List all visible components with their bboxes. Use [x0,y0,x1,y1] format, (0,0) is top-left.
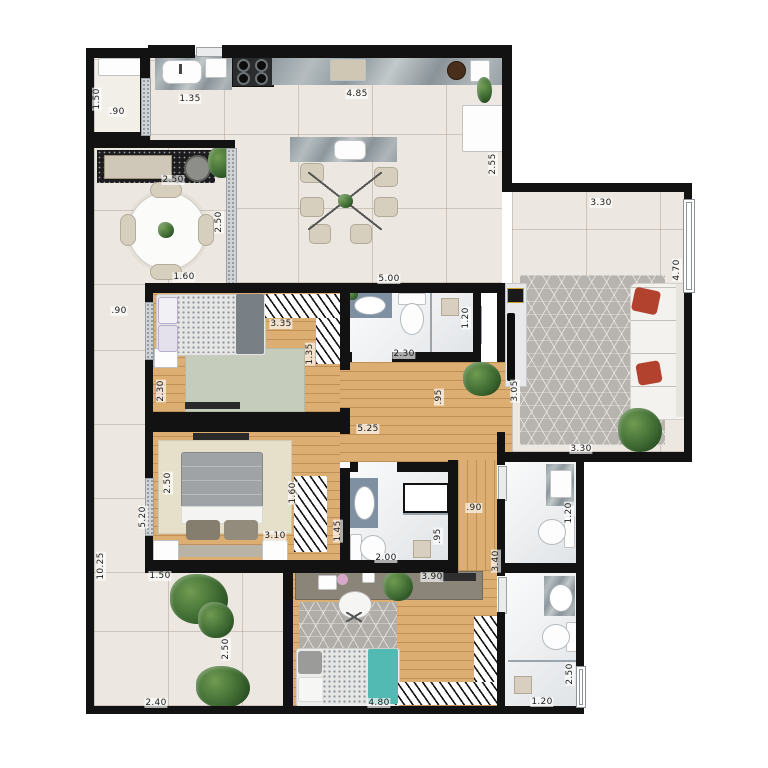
dimension-label: 2.55 [488,152,498,175]
dimension-label: 3.30 [589,198,612,208]
bed1-pillow [158,325,178,352]
dimension-label: 2.50 [161,175,184,185]
wall-bedroom1-top [145,283,505,293]
terrace-chair [198,214,214,246]
fridge [462,105,506,152]
wall-bath3-4-divider [505,563,584,573]
wall-top [222,45,512,58]
floor-plan: .901.501.354.852.552.502.501.60.9010.253… [0,0,768,768]
dimension-label: 3.90 [420,572,443,582]
patio-plant [196,666,250,708]
dimension-label: 2.00 [374,553,397,563]
stove-burner [237,72,250,85]
bed3-duvet [322,649,372,704]
wall-step [502,183,692,192]
island-sink [334,140,366,160]
bedroom1-window [145,302,154,360]
wall-tv [497,283,505,362]
bath4-shower-head [514,676,532,694]
dimension-label: 2.50 [565,662,575,685]
wall-right [684,183,692,199]
wall-bath2-right [448,460,458,570]
wall-right [684,291,692,462]
entry-door [196,47,224,57]
bed2-tv-rack [193,433,249,440]
desk-chair-legs [346,612,362,622]
dimension-label: 2.30 [392,349,415,359]
dimension-label: .95 [434,388,444,405]
wall-left [86,48,94,714]
dimension-label: 1.60 [288,481,298,504]
wall-bath1-bottom [340,352,352,362]
bed1-tv-rack [185,402,240,409]
stove-burner [237,59,250,72]
table-plant [158,222,174,238]
bedroom3-plant [383,571,413,601]
dining-table-plant [338,194,353,208]
bath1-shower-glass [430,293,432,353]
bath2-shower-head [413,540,431,558]
counter-plant [477,77,492,103]
bedroom3-closet [395,682,502,705]
bedroom1-closet [265,294,340,318]
coffee-maker [447,61,466,80]
dimension-label: 1.35 [305,342,315,365]
bath3-door [498,466,507,501]
cutting-board [330,59,366,81]
tv-screen [507,313,515,381]
bed1-duvet [176,295,236,353]
dimension-label: 3.35 [269,319,292,329]
dimension-label: 4.85 [345,89,368,99]
wall-hall-right [497,432,505,465]
dimension-label: 10.25 [96,551,106,580]
bath4-window [576,666,586,708]
hall-plant [463,362,501,396]
patio-plant [198,602,234,638]
terrace-chair [120,214,136,246]
wall-gourmet-top [94,140,235,148]
dimension-label: 1.50 [92,87,102,110]
bed3-pillow [298,677,324,702]
wall-bath4-left [497,612,505,706]
dimension-label: .90 [110,306,127,316]
wall-living-bottom [497,452,692,462]
bath4-sink [549,584,573,612]
dimension-label: 1.45 [333,519,343,542]
dimension-label: 2.50 [221,637,231,660]
bed3-pillow [298,651,322,674]
stove-burner [255,72,268,85]
dimension-label: 5.00 [377,274,400,284]
dimension-label: 2.40 [144,698,167,708]
wall-bedroom1-2 [145,412,350,432]
bath1-sink [354,296,386,315]
media-box [507,288,524,303]
dimension-label: 5.25 [356,424,379,434]
bed2-headboard [178,545,264,557]
dimension-label: 2.30 [156,379,166,402]
wall-top [148,45,195,58]
dimension-label: .90 [465,503,482,513]
dimension-label: 1.20 [461,306,471,329]
side-corridor-floor [94,285,145,573]
desk-shelf [440,573,476,581]
bath2-sink [354,486,375,520]
dimension-label: 1.50 [148,571,171,581]
bath4-toilet [542,624,570,650]
kitchen-faucet [179,64,182,74]
bed2-pillow [186,520,220,540]
dimension-label: .90 [108,107,125,117]
dimension-label: 1.20 [530,697,553,707]
wall-service-top [86,48,148,58]
dimension-label: 1.60 [172,272,195,282]
dimension-label: 1.35 [178,94,201,104]
laptop [318,575,337,590]
wall-bedroom2-bottom [145,560,458,573]
living-plant [618,408,662,452]
dimension-label: 1.20 [564,501,574,524]
kitchen-sink [162,60,202,84]
wall-patio-right [283,573,293,706]
living-window [683,199,695,293]
bed2-duvet [181,452,263,512]
dimension-label: 2.50 [214,210,224,233]
bed2-nightstand [262,540,288,562]
dimension-label: 3.10 [263,531,286,541]
dimension-label: 4.80 [367,698,390,708]
sofa-pillow-red [635,360,662,386]
service-window [141,78,151,136]
bed2-pillow [224,520,258,540]
bed2-nightstand [153,540,179,562]
gourmet-sink [184,155,211,182]
kitchen-counter [272,55,502,85]
desk-item-pink [337,574,348,585]
dimension-label: 2.50 [163,471,173,494]
sofa-pillow-red [631,287,661,316]
dimension-label: 4.70 [672,258,682,281]
bath3-toilet [538,519,566,545]
wall-bath2-top [350,462,358,472]
bath3-sink [550,470,572,498]
gourmet-glass-partition [226,148,237,287]
bedroom1-closet [316,318,340,364]
bedroom2-closet [294,476,327,552]
bath2-duct [403,483,449,513]
bed1-pillow [158,297,178,324]
dimension-label: 3.40 [491,549,501,572]
dimension-label: 5.20 [138,505,148,528]
dimension-label: 3.05 [510,379,520,402]
stove-burner [255,59,268,72]
bath1-toilet [400,303,424,335]
bed3-throw-teal [368,649,398,704]
wall-service-bottom [94,132,146,140]
bed1-throw [236,294,264,354]
kitchen-appliance [205,58,227,78]
wall-shaft-left [473,283,481,362]
dimension-label: .95 [433,527,443,544]
dimension-label: 3.30 [569,444,592,454]
wall-kitchen-right [502,45,512,192]
desk-item [362,572,375,583]
bath4-door [498,577,507,614]
laundry-tank [98,58,144,76]
bath1-shower-head [441,298,459,316]
bath2-shower-glass [403,513,448,515]
